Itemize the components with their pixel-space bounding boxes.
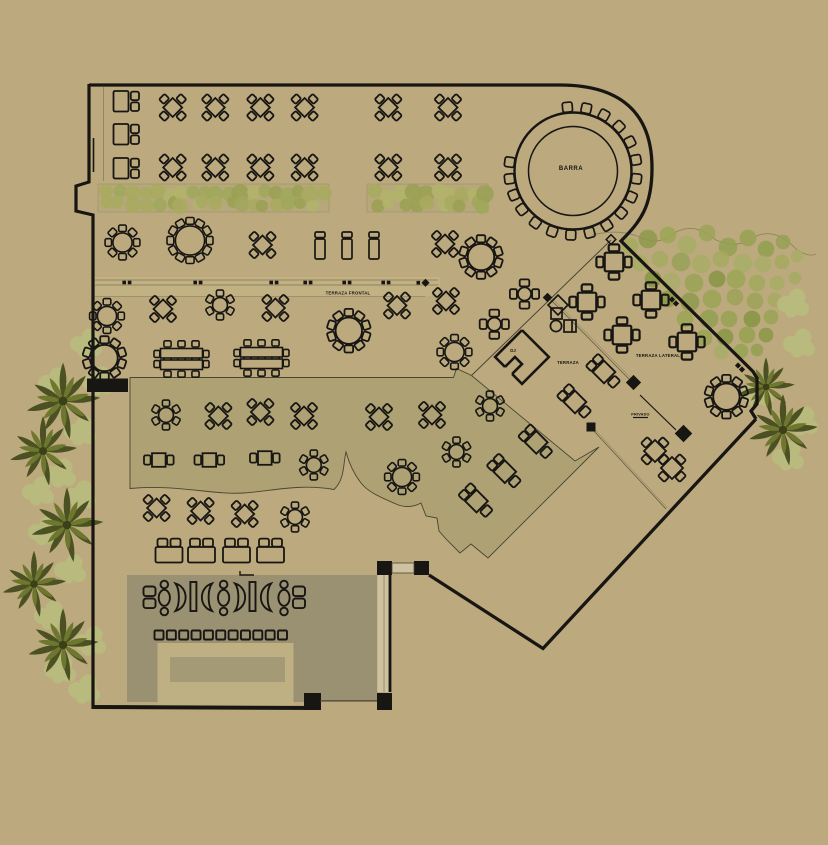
svg-text:BARRA: BARRA	[559, 166, 583, 172]
svg-text:PRIVADO: PRIVADO	[631, 413, 649, 417]
svg-text:TERRAZA: TERRAZA	[557, 360, 579, 365]
svg-text:TERRAZA LATERAL: TERRAZA LATERAL	[636, 353, 680, 358]
svg-text:TERRAZA FRONTAL: TERRAZA FRONTAL	[326, 291, 371, 296]
svg-text:DJ: DJ	[510, 348, 516, 353]
